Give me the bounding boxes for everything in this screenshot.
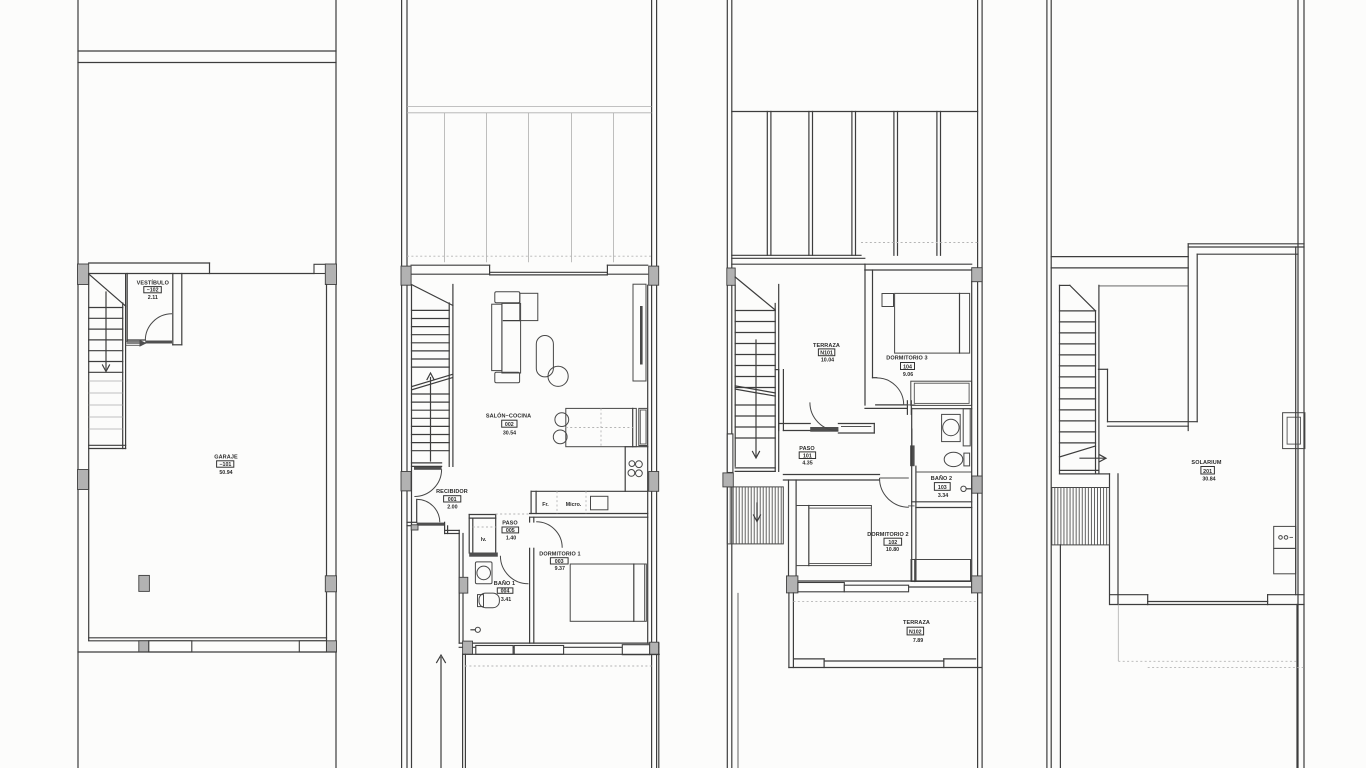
svg-text:50.94: 50.94 bbox=[219, 470, 232, 476]
svg-text:TERRAZA: TERRAZA bbox=[813, 343, 840, 349]
svg-text:BAÑO 1: BAÑO 1 bbox=[494, 580, 515, 587]
svg-text:002: 002 bbox=[505, 422, 514, 428]
svg-text:PASO: PASO bbox=[502, 521, 518, 527]
svg-text:SOLARIUM: SOLARIUM bbox=[1191, 460, 1221, 466]
svg-text:9.37: 9.37 bbox=[555, 566, 565, 572]
svg-text:Micro.: Micro. bbox=[566, 502, 582, 508]
svg-text:3.41: 3.41 bbox=[501, 597, 511, 603]
svg-text:10.80: 10.80 bbox=[886, 547, 899, 553]
svg-text:1.40: 1.40 bbox=[506, 536, 516, 542]
svg-text:10.04: 10.04 bbox=[821, 358, 834, 364]
svg-text:BAÑO 2: BAÑO 2 bbox=[931, 475, 952, 482]
svg-text:SALÓN−COCINA: SALÓN−COCINA bbox=[486, 412, 531, 420]
svg-text:004: 004 bbox=[501, 588, 510, 594]
svg-text:RECIBIDOR: RECIBIDOR bbox=[436, 489, 468, 495]
svg-text:003: 003 bbox=[555, 559, 564, 565]
svg-text:VESTÍBULO: VESTÍBULO bbox=[137, 279, 170, 287]
svg-text:N102: N102 bbox=[909, 630, 922, 636]
svg-text:101: 101 bbox=[803, 453, 812, 459]
svg-text:104: 104 bbox=[903, 364, 912, 370]
svg-text:Fr.: Fr. bbox=[542, 502, 549, 508]
svg-text:30.84: 30.84 bbox=[1202, 476, 1215, 482]
svg-text:005: 005 bbox=[506, 528, 515, 534]
svg-text:001: 001 bbox=[448, 497, 457, 503]
svg-text:TERRAZA: TERRAZA bbox=[903, 620, 930, 626]
svg-text:2.00: 2.00 bbox=[447, 504, 457, 510]
svg-text:−102: −102 bbox=[147, 288, 159, 294]
svg-text:7.89: 7.89 bbox=[913, 638, 923, 644]
svg-text:DORMITORIO 1: DORMITORIO 1 bbox=[539, 551, 580, 557]
svg-text:201: 201 bbox=[1203, 469, 1212, 475]
svg-text:30.54: 30.54 bbox=[503, 430, 516, 436]
svg-text:9.06: 9.06 bbox=[903, 372, 913, 378]
svg-text:GARAJE: GARAJE bbox=[214, 455, 238, 461]
svg-text:DORMITORIO 3: DORMITORIO 3 bbox=[886, 356, 927, 362]
svg-text:−101: −101 bbox=[219, 462, 231, 468]
svg-text:2.11: 2.11 bbox=[148, 295, 158, 301]
svg-text:103: 103 bbox=[938, 485, 947, 491]
svg-text:PASO: PASO bbox=[799, 446, 815, 452]
svg-text:102: 102 bbox=[888, 540, 897, 546]
svg-text:DORMITORIO 2: DORMITORIO 2 bbox=[867, 532, 908, 538]
svg-text:N101: N101 bbox=[820, 351, 833, 357]
svg-text:3.34: 3.34 bbox=[938, 493, 948, 499]
svg-text:4.35: 4.35 bbox=[802, 460, 812, 466]
svg-text:lv.: lv. bbox=[481, 537, 487, 543]
